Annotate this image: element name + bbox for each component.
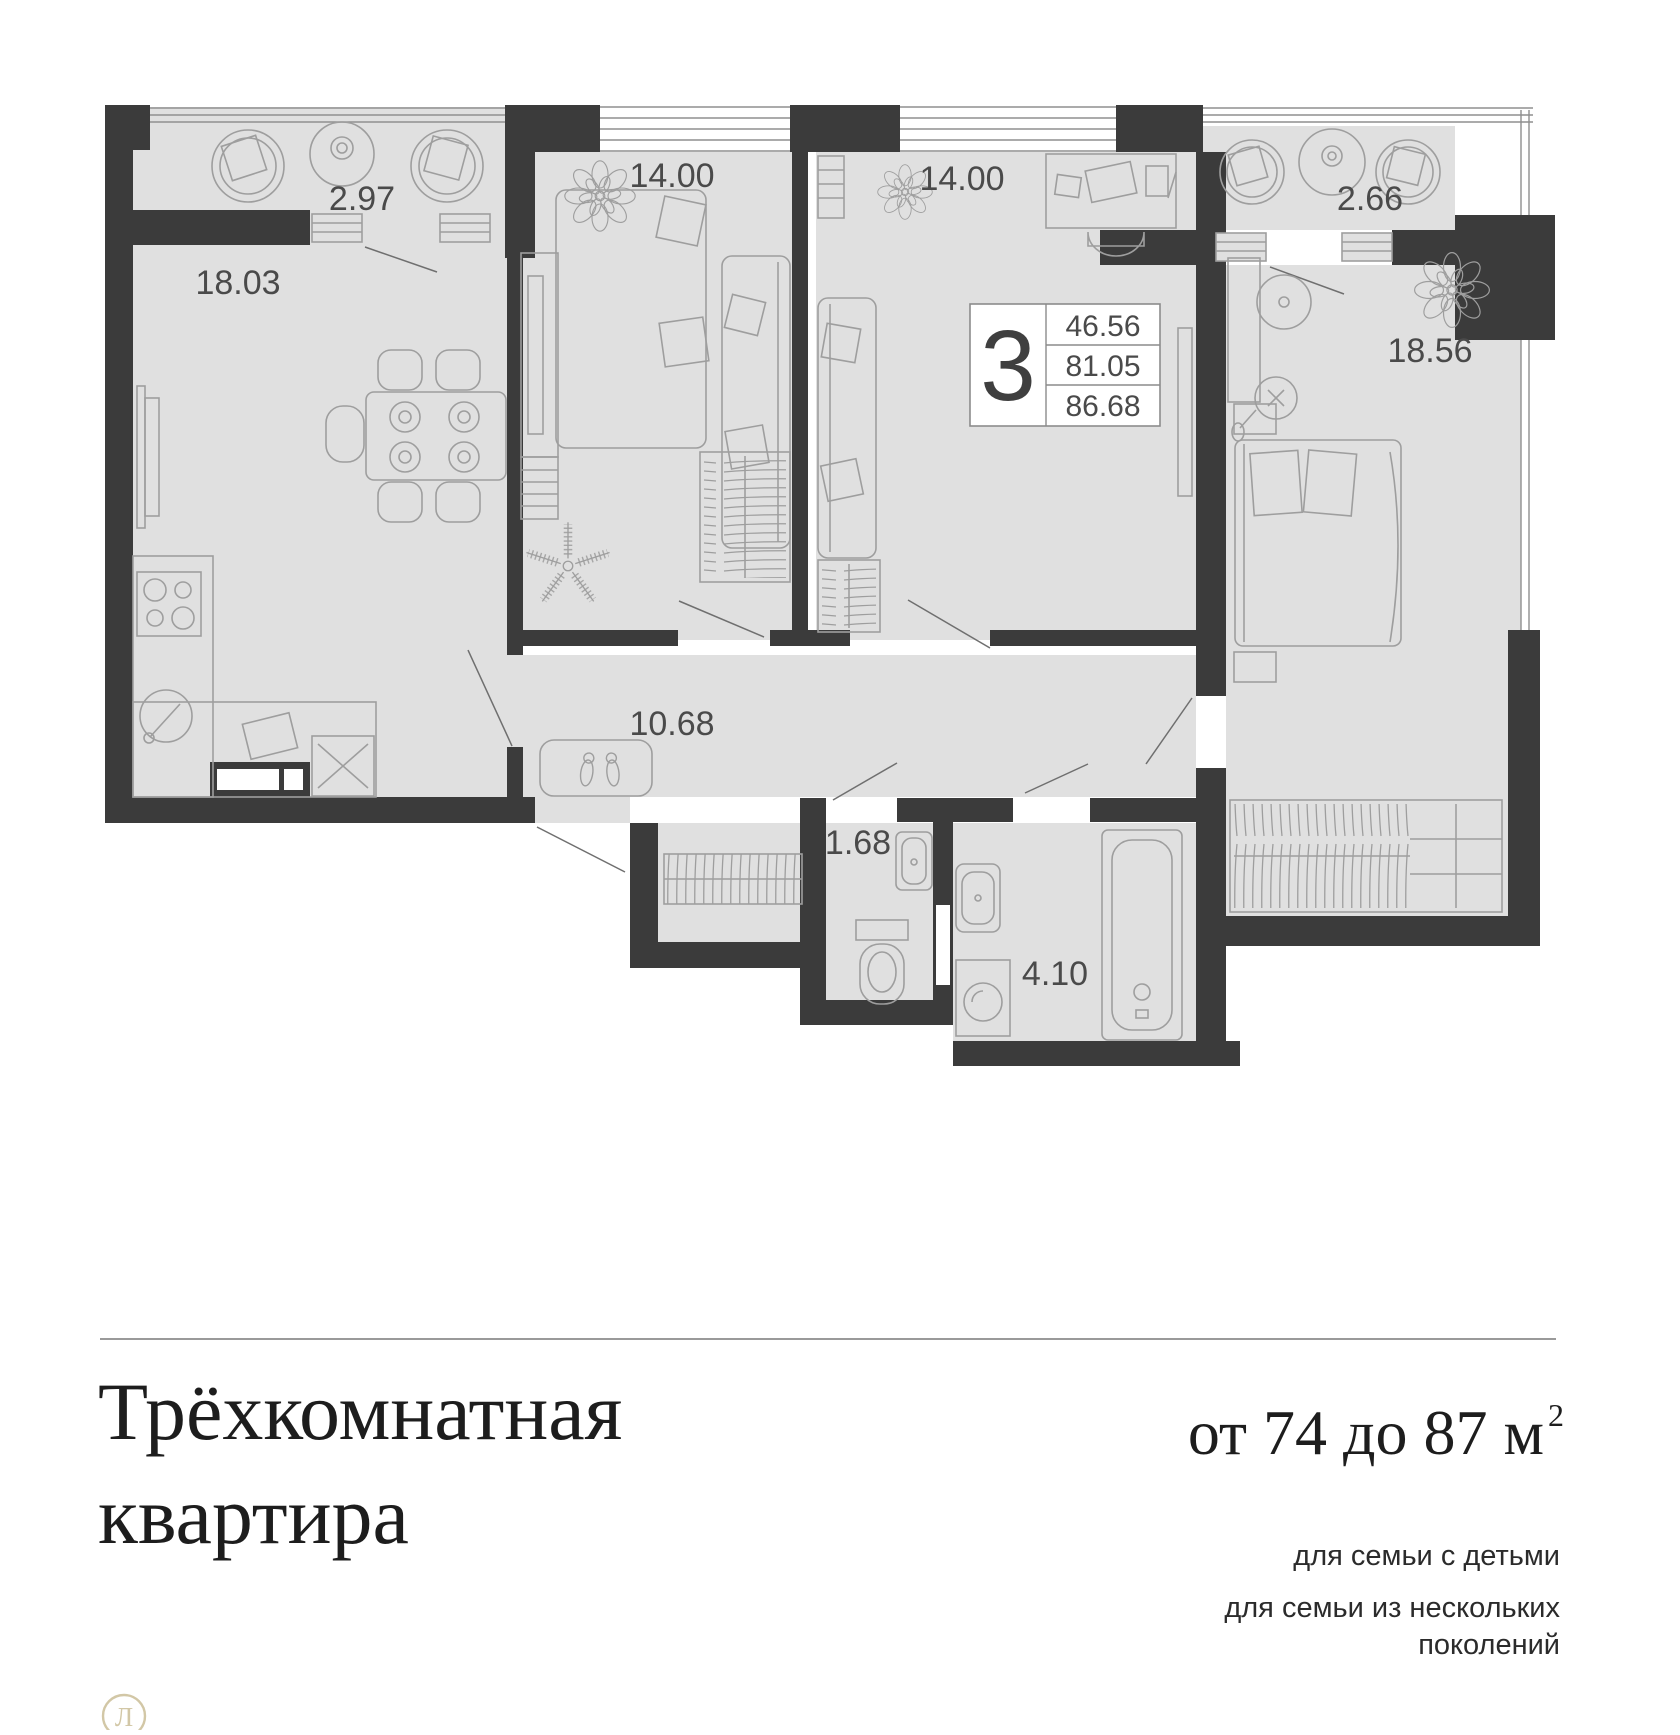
area-range-text: от 74 до 87 м bbox=[1188, 1397, 1544, 1468]
logo-letter: Л bbox=[115, 1702, 133, 1730]
total-area-value: 86.68 bbox=[1065, 390, 1140, 423]
audience-tag-families-with-children: для семьи с детьми bbox=[1293, 1540, 1560, 1573]
title-line-2: квартира bbox=[98, 1464, 622, 1568]
room-label-wc: 1.68 bbox=[825, 824, 891, 862]
page-title: Трёхкомнатная квартира bbox=[98, 1360, 622, 1568]
brand-logo: Л bbox=[96, 1692, 156, 1730]
area-without-balconies-value: 81.05 bbox=[1065, 350, 1140, 383]
room-label-bedroom-3: 14.00 bbox=[919, 160, 1004, 198]
audience-tag-multi-generation: для семьи из нескольких поколений bbox=[1180, 1590, 1560, 1664]
floorplan-page: { "plan": { "labels": { "balcony_1": "2.… bbox=[0, 0, 1680, 1730]
room-label-master-bedroom: 18.56 bbox=[1387, 332, 1472, 370]
area-range-superscript: 2 bbox=[1548, 1397, 1564, 1433]
footer-divider bbox=[100, 1338, 1556, 1340]
room-label-bedroom-2: 14.00 bbox=[629, 157, 714, 195]
window-master-bedroom bbox=[1521, 110, 1529, 630]
rooms-count: 3 bbox=[980, 310, 1036, 422]
room-label-bathroom: 4.10 bbox=[1022, 955, 1088, 993]
window-bedroom-3 bbox=[900, 107, 1116, 151]
room-label-balcony-2: 2.66 bbox=[1337, 180, 1403, 218]
living-area-value: 46.56 bbox=[1065, 310, 1140, 343]
window-bedroom-2 bbox=[600, 107, 790, 151]
apartment-info-box: 3 46.56 81.05 86.68 bbox=[970, 304, 1160, 426]
room-label-hallway: 10.68 bbox=[629, 705, 714, 743]
floor-hallway bbox=[507, 655, 1196, 797]
title-line-1: Трёхкомнатная bbox=[98, 1360, 622, 1464]
area-range: от 74 до 87 м2 bbox=[1188, 1396, 1560, 1470]
room-label-kitchen-living: 18.03 bbox=[195, 264, 280, 302]
room-label-balcony-1: 2.97 bbox=[329, 180, 395, 218]
floor-kitchen-living bbox=[133, 245, 507, 797]
